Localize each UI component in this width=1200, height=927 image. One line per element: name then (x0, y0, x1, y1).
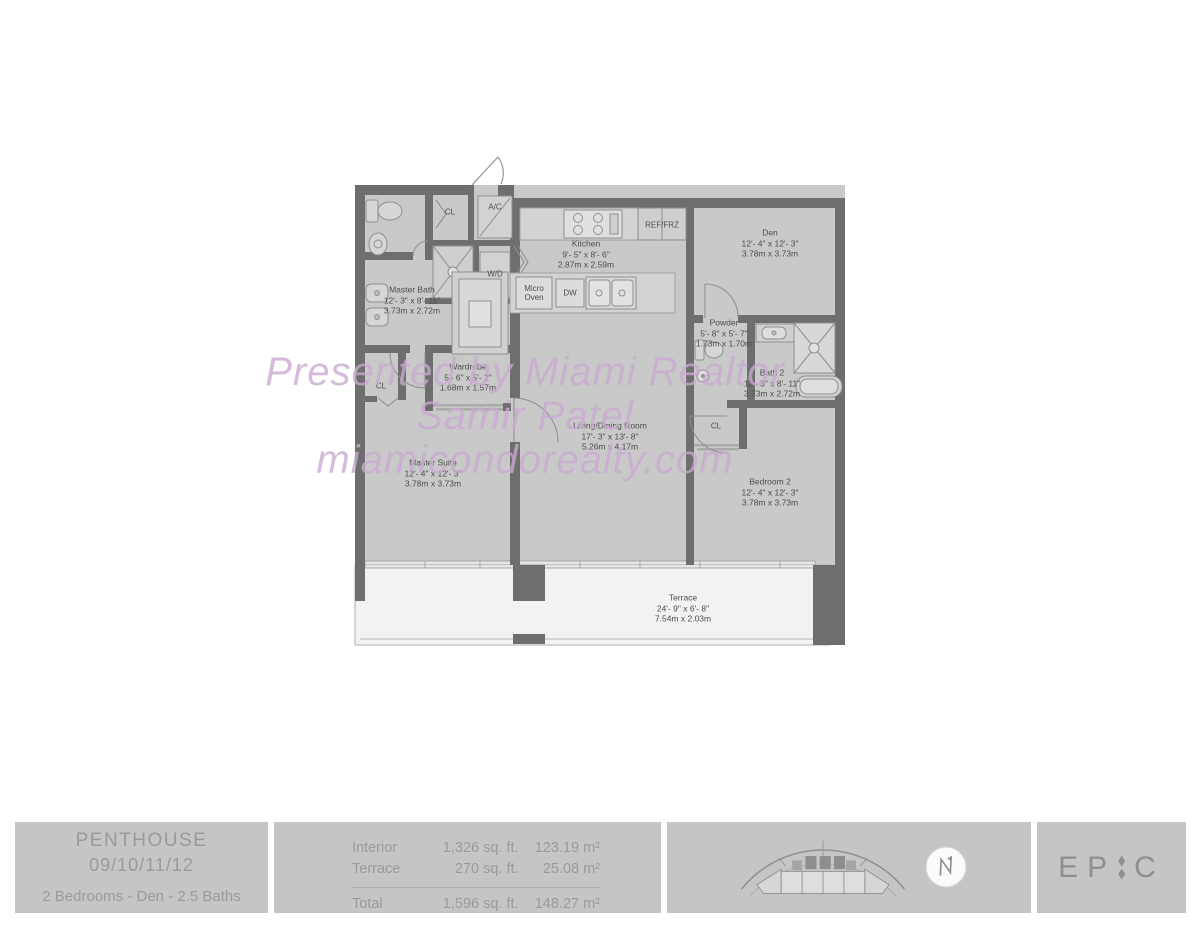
room-dim-metric: 7.54m x 2.03m (655, 613, 711, 624)
label-washer-dryer: W/D (487, 270, 503, 279)
room-name: Kitchen (558, 238, 614, 249)
room-dim-imperial: 12'- 4" x 12'- 3" (741, 238, 798, 249)
room-dim-metric: 1.68m x 1.57m (440, 382, 496, 393)
floor-plan: Kitchen 9'- 5" x 8'- 6" 2.87m x 2.59m De… (340, 140, 870, 660)
room-dim-imperial: 17'- 3" x 13'- 8" (573, 431, 647, 442)
closet-label: CL (376, 382, 386, 391)
room-dim-metric: 3.73m x 2.72m (384, 305, 440, 316)
room-dim-metric: 2.87m x 2.59m (558, 259, 614, 270)
room-name: Living/Dining Room (573, 420, 647, 431)
room-label-den: Den 12'- 4" x 12'- 3" 3.78m x 3.73m (741, 227, 798, 259)
room-label-terrace: Terrace 24'- 9" x 6'- 8" 7.54m x 2.03m (655, 592, 711, 624)
area-sqm: 25.08 m² (519, 859, 600, 880)
room-dim-imperial: 12'- 4" x 12'- 3" (404, 468, 461, 479)
room-dim-imperial: 5'- 6" x 5'- 2" (440, 372, 496, 383)
room-label-bath-2: Bath 2 12'- 3" x 8'- 11" 3.73m x 2.72m (744, 367, 800, 399)
epic-logo: EP C (1058, 851, 1165, 885)
area-sqft: 270 sq. ft. (433, 859, 518, 880)
area-label: Terrace (352, 859, 433, 880)
area-sqm: 123.19 m² (519, 838, 600, 859)
room-name: Wardrobe (440, 361, 496, 372)
room-label-powder: Powder 5'- 8" x 5'- 7" 1.73m x 1.70m (696, 317, 752, 349)
room-dim-metric: 3.73m x 2.72m (744, 388, 800, 399)
room-label-bedroom-2: Bedroom 2 12'- 4" x 12'- 3" 3.78m x 3.73… (741, 476, 798, 508)
room-dim-imperial: 9'- 5" x 8'- 6" (558, 249, 614, 260)
room-dim-metric: 5.26m x 4.17m (573, 441, 647, 452)
label-micro-oven: Micro Oven (524, 284, 544, 302)
floorplan-page: Kitchen 9'- 5" x 8'- 6" 2.87m x 2.59m De… (0, 0, 1200, 927)
ref-label: REF/FRZ (645, 221, 679, 230)
room-name: Den (741, 227, 798, 238)
label-ac: A/C (488, 203, 501, 212)
room-label-wardrobe: Wardrobe 5'- 6" x 5'- 2" 1.68m x 1.57m (440, 361, 496, 393)
area-divider (352, 887, 600, 888)
area-row-terrace: Terrace 270 sq. ft. 25.08 m² (352, 859, 600, 880)
closet-label: CL (711, 422, 721, 431)
epic-logo-left: EP (1058, 851, 1116, 885)
ac-label: A/C (488, 203, 501, 212)
room-dim-metric: 1.73m x 1.70m (696, 338, 752, 349)
room-label-master-suite: Master Suite 12'- 4" x 12'- 3" 3.78m x 3… (404, 457, 461, 489)
unit-stack-numbers: 09/10/11/12 (89, 855, 194, 876)
micro-label-1: Micro (524, 284, 544, 293)
room-label-master-bath: Master Bath 12'- 3" x 8'- 11" 3.73m x 2.… (384, 284, 440, 316)
room-name: Master Suite (404, 457, 461, 468)
unit-info-panel: PENTHOUSE 09/10/11/12 2 Bedrooms - Den -… (15, 822, 268, 913)
room-label-kitchen: Kitchen 9'- 5" x 8'- 6" 2.87m x 2.59m (558, 238, 614, 270)
epic-logo-diamond-icon (1118, 855, 1125, 881)
label-closet-master: CL (376, 382, 386, 391)
room-dim-metric: 3.78m x 3.73m (741, 497, 798, 508)
label-ref-frz: REF/FRZ (645, 221, 679, 230)
room-dim-metric: 3.78m x 3.73m (741, 248, 798, 259)
room-dim-imperial: 24'- 9" x 6'- 8" (655, 603, 711, 614)
closet-label: CL (445, 208, 455, 217)
label-dishwasher: DW (563, 289, 576, 298)
area-row-interior: Interior 1,326 sq. ft. 123.19 m² (352, 838, 600, 859)
area-label: Total (352, 894, 433, 915)
room-name: Bath 2 (744, 367, 800, 378)
area-label: Interior (352, 838, 433, 859)
room-dim-imperial: 12'- 4" x 12'- 3" (741, 487, 798, 498)
epic-logo-right: C (1134, 851, 1165, 885)
room-dim-imperial: 5'- 8" x 5'- 7" (696, 328, 752, 339)
label-closet-bedroom2: CL (711, 422, 721, 431)
area-row-total: Total 1,596 sq. ft. 148.27 m² (352, 894, 600, 915)
keyplan-panel (667, 822, 1031, 913)
floor-plan-drawing (340, 140, 870, 660)
unit-title: PENTHOUSE (76, 830, 208, 852)
area-sqft: 1,326 sq. ft. (433, 838, 518, 859)
label-closet-entry: CL (445, 208, 455, 217)
area-sqm: 148.27 m² (519, 894, 600, 915)
dw-label: DW (563, 289, 576, 298)
room-name: Powder (696, 317, 752, 328)
north-arrow-icon (925, 846, 967, 888)
room-name: Master Bath (384, 284, 440, 295)
room-dim-imperial: 12'- 3" x 8'- 11" (744, 378, 800, 389)
room-name: Terrace (655, 592, 711, 603)
brand-panel: EP C (1037, 822, 1186, 913)
room-name: Bedroom 2 (741, 476, 798, 487)
wd-label: W/D (487, 270, 503, 279)
area-summary-panel: Interior 1,326 sq. ft. 123.19 m² Terrace… (274, 822, 661, 913)
area-sqft: 1,596 sq. ft. (433, 894, 518, 915)
area-table: Interior 1,326 sq. ft. 123.19 m² Terrace… (352, 838, 600, 915)
room-dim-imperial: 12'- 3" x 8'- 11" (384, 295, 440, 306)
micro-label-2: Oven (524, 293, 544, 302)
building-keyplan-icon (723, 834, 923, 900)
room-dim-metric: 3.78m x 3.73m (404, 478, 461, 489)
room-label-living-dining: Living/Dining Room 17'- 3" x 13'- 8" 5.2… (573, 420, 647, 452)
unit-subtitle: 2 Bedrooms - Den - 2.5 Baths (42, 888, 240, 905)
